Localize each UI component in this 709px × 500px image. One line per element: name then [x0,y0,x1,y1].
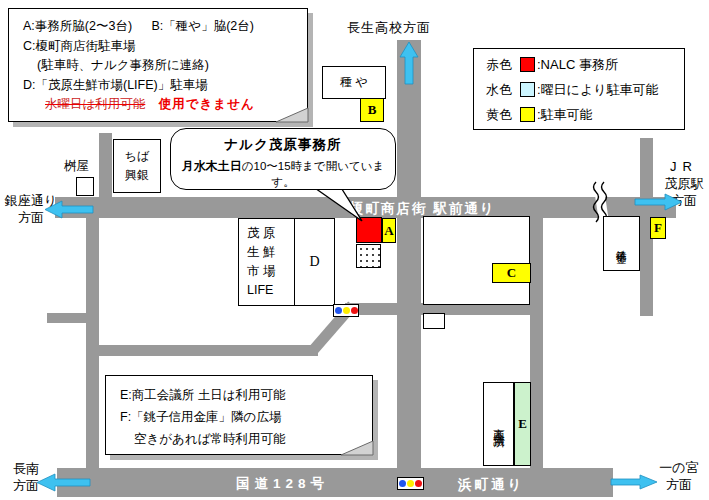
office-info-bubble: ナルク茂原事務所 月水木土日の10〜15時まで開いています。 [170,128,396,190]
road-label-hamacho: 浜町通り [458,476,524,494]
usage-note-line3: 空きがあれば常時利用可能 [134,428,372,450]
parking-note-line5: 水曜日は利用可能 使用できません [45,95,307,115]
usage-note-line2: F:「銚子信用金庫」隣の広場 [120,406,372,428]
road-mid-left [95,345,318,356]
parking-marker-b: B [360,98,384,122]
road-label-route128: 国道128号 [236,475,329,493]
small-building [423,313,445,329]
building-life-name: 茂 原 生 鮮 市 場 LIFE [239,219,295,305]
parking-marker-d: D [295,219,334,305]
building-life-market: 茂 原 生 鮮 市 場 LIFE D [238,218,335,306]
legend-row-red: 赤色 :NALC 事務所 [474,52,684,77]
red-swatch [520,57,535,72]
road-right-vertical-1 [530,218,543,497]
parking-marker-c: C [492,263,531,283]
folded-corner-icon [341,439,373,455]
direction-north-label: 長生高校方面 [347,19,431,36]
arrow-right-icon [611,475,657,489]
building-masuya-label: 桝屋 [64,158,89,175]
parking-note: A:事務所脇(2〜3台) B:「種や」脇(2台) C:榎町商店街駐車場 (駐車時… [8,8,308,122]
yellow-swatch [520,107,535,122]
road-left-stub [47,313,86,323]
building-chamber-of-commerce: 商工会議所 [483,382,514,466]
parking-marker-a: A [382,218,396,243]
legend-row-cyan: 水色 :曜日により駐車可能 [474,77,684,102]
building-choshi-shinkin: 銚子信金 [603,216,640,271]
traffic-light-icon [397,477,424,490]
access-map: 榎町商店街 駅前通り 国道128号 浜町通り 長生高校方面 銀座通り 方面 JR… [0,0,709,500]
parking-note-line2: C:榎町商店街駐車場 [23,37,307,57]
traffic-light-icon [333,304,359,317]
building-chiba-kogin: ちば 興銀 [113,139,161,193]
dotted-parking-area [356,244,381,268]
shotengai-parking-block [423,216,530,305]
arrow-left-icon [37,474,90,491]
usage-note: E:商工会議所 土日は利用可能 F:「銚子信用金庫」隣の広場 空きがあれば常時利… [105,375,373,455]
road-left-vertical-upper [99,133,112,213]
building-taneya: 種 や [322,66,386,99]
parking-marker-e: E [514,382,531,466]
road-center-vertical [397,40,421,497]
direction-east-lower-label: 一の宮 方面 [650,459,708,493]
parking-note-line4: D:「茂原生鮮市場(LIFE)」駐車場 [23,76,307,96]
color-legend: 赤色 :NALC 事務所 水色 :曜日により駐車可能 黄色 :駐車可能 [473,48,685,130]
bubble-title: ナルク茂原事務所 [171,136,395,154]
cyan-swatch [520,82,535,97]
arrow-up-icon [400,42,418,84]
building-masuya [76,177,94,196]
arrow-left-icon [45,201,93,218]
parking-note-line1: A:事務所脇(2〜3台) B:「種や」脇(2台) [23,17,307,37]
legend-row-yellow: 黄色 :駐車可能 [474,102,684,127]
parking-marker-f: F [650,217,666,239]
bubble-schedule: 月水木土日の10〜15時まで開いています。 [171,158,395,190]
usage-note-line1: E:商工会議所 土日は利用可能 [120,384,372,406]
parking-note-line3: (駐車時、ナルク事務所に連絡) [37,56,307,76]
folded-corner-icon [276,106,308,122]
arrow-right-icon [635,194,682,210]
